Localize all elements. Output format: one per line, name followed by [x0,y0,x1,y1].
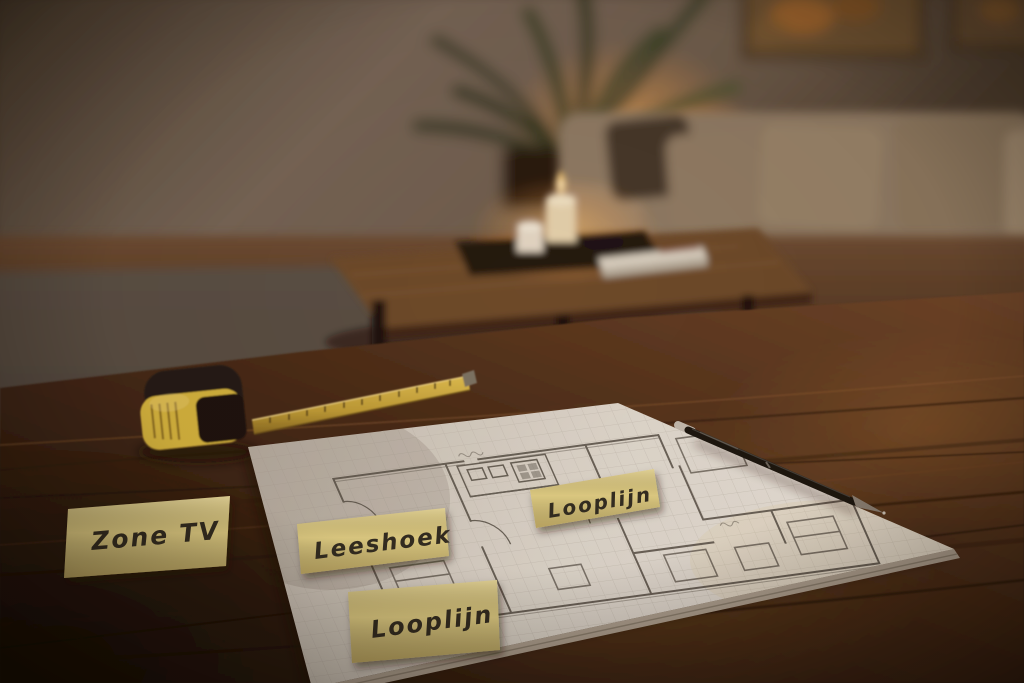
vignette [0,0,1024,683]
living-room-photo: Zone TV Leeshoek Looplijn Looplijn [0,0,1024,683]
photo-canvas: Zone TV Leeshoek Looplijn Looplijn [0,0,1024,683]
